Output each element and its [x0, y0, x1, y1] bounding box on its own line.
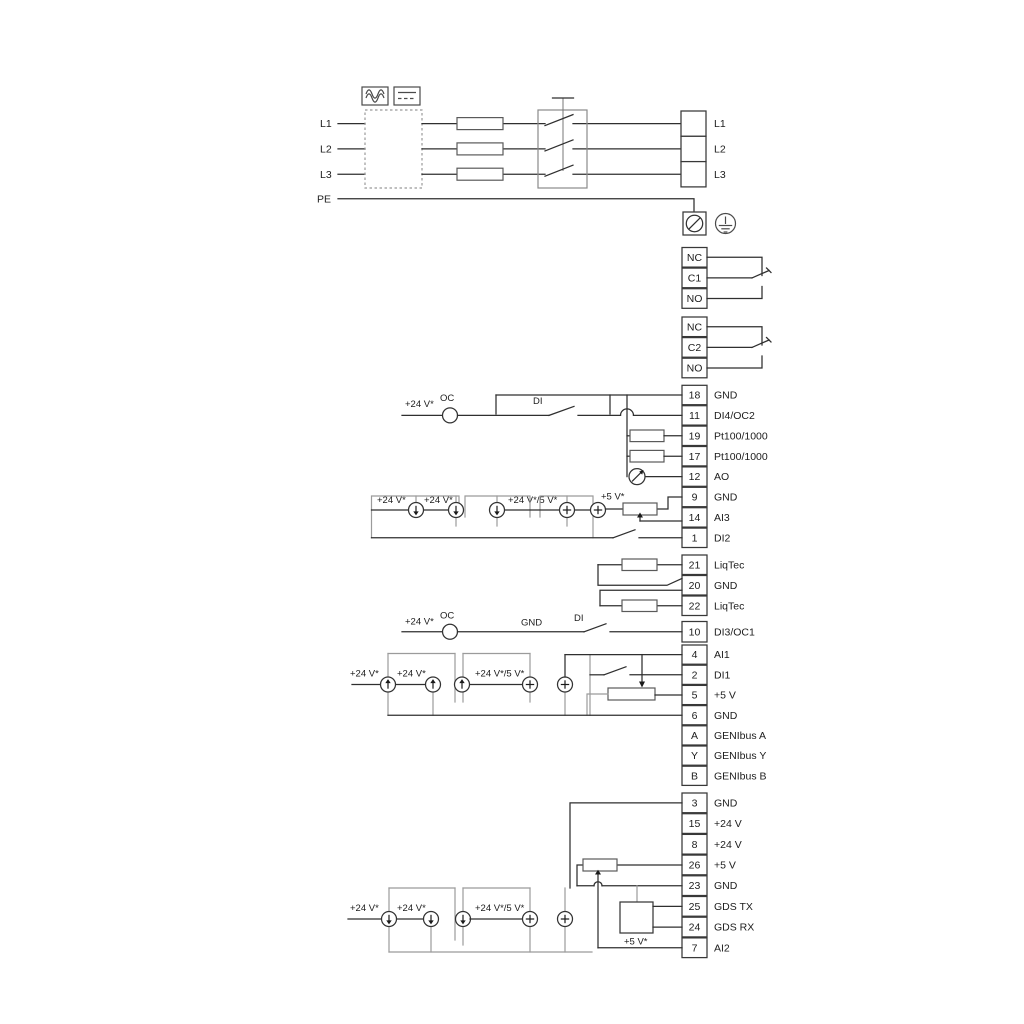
annotation-plus24v-5v: +24 V*/5 V* [508, 495, 558, 506]
di-switch-blade [549, 406, 574, 415]
terminal-4-label: AI1 [714, 649, 730, 661]
gds-sensor: +5 V* [620, 886, 682, 948]
terminal-14-number: 14 [689, 512, 701, 524]
terminal-23-label: GND [714, 880, 738, 892]
terminal-a-label: GENIbus A [714, 730, 766, 742]
terminal-17-number: 17 [689, 451, 701, 463]
terminal-strip-liqtec: 21 20 22 LiqTec GND LiqTec [598, 555, 744, 616]
terminal-23-number: 23 [689, 880, 701, 892]
current-source-up-icon [455, 677, 470, 692]
wiper-arrow [639, 682, 645, 688]
analog-output-meter-icon [629, 469, 682, 485]
annotation-plus24v: +24 V* [405, 399, 434, 410]
terminal-7-label: AI2 [714, 942, 730, 954]
annotation-plus24v: +24 V* [397, 669, 426, 680]
relay1-c1: C1 [688, 273, 702, 285]
terminal-strip-io2: 10 4 2 5 6 A Y B DI3/OC1 AI1 DI1 +5 V GN… [682, 622, 767, 786]
terminal-b-label: GENIbus B [714, 770, 767, 782]
screw-terminal-icon [683, 212, 706, 235]
annotation-plus24v-5v: +24 V*/5 V* [475, 669, 525, 680]
current-source-up-icon [381, 677, 396, 692]
fuse-l1 [457, 118, 503, 130]
terminal-10-label: DI3/OC1 [714, 626, 755, 638]
terminal-18-number: 18 [689, 390, 701, 402]
liqtec-sensor-resistor [622, 559, 657, 571]
terminal-y-label: GENIbus Y [714, 750, 766, 762]
terminal-21-number: 21 [689, 559, 701, 571]
current-source-down-icon [424, 912, 439, 927]
terminal-4-number: 4 [692, 649, 698, 661]
voltage-source-plus-icon [523, 912, 538, 927]
potentiometer [583, 859, 617, 871]
annotation-plus24v: +24 V* [377, 495, 406, 506]
terminal-18-label: GND [714, 390, 738, 402]
current-source-up-icon [426, 677, 441, 692]
annotation-plus5v: +5 V* [624, 937, 648, 948]
annotation-plus24v: +24 V* [350, 903, 379, 914]
terminal-24-number: 24 [689, 922, 701, 934]
switch-blade-l3 [545, 165, 573, 176]
terminal-12-label: AO [714, 471, 729, 483]
terminal-20-label: GND [714, 580, 738, 592]
annotation-plus24v: +24 V* [405, 617, 434, 628]
liqtec-sensor-resistor [622, 600, 657, 612]
terminal-2-number: 2 [692, 669, 698, 681]
relay2-c2: C2 [688, 342, 702, 354]
dc-symbol-icon [394, 87, 420, 105]
annotation-plus24v-5v: +24 V*/5 V* [475, 903, 525, 914]
terminal-25-number: 25 [689, 901, 701, 913]
annotation-oc: OC [440, 611, 454, 622]
oc-circle [443, 408, 458, 423]
di1-switch-blade [604, 667, 626, 675]
annotation-plus24v: +24 V* [350, 669, 379, 680]
output-label-l2: L2 [714, 144, 726, 156]
current-source-down-icon [382, 912, 397, 927]
input-label-l3: L3 [320, 169, 332, 181]
terminal-15-label: +24 V [714, 818, 742, 830]
input-label-l2: L2 [320, 144, 332, 156]
terminal-6-number: 6 [692, 710, 698, 722]
terminal-15-number: 15 [689, 818, 701, 830]
potentiometer [608, 688, 655, 700]
terminal-y-number: Y [691, 750, 698, 762]
power-section: L1 L2 L3 PE [317, 87, 736, 235]
relay1-contact [707, 257, 771, 298]
wiring-diagram: L1 L2 L3 PE [0, 0, 1024, 1024]
annotation-di: DI [574, 613, 584, 624]
relay2-contact [707, 327, 771, 368]
fuse-l3 [457, 168, 503, 180]
voltage-source-plus-icon [523, 677, 538, 692]
input-label-l1: L1 [320, 118, 332, 130]
terminal-1-number: 1 [692, 532, 698, 544]
terminal-2-label: DI1 [714, 669, 731, 681]
io2-wiring: +24 V* OC GND DI +24 V* +24 V* +24 V*/5 … [350, 611, 682, 716]
oc-circle [443, 624, 458, 639]
terminal-21-label: LiqTec [714, 559, 744, 571]
annotation-plus24v: +24 V* [397, 903, 426, 914]
relay2: NC C2 NO [682, 317, 771, 378]
current-source-down-icon [490, 503, 505, 518]
current-source-down-icon [456, 912, 471, 927]
terminal-strip-io1: 18 11 19 17 12 9 14 1 GND DI4/OC2 Pt100/… [682, 385, 768, 547]
relay2-nc: NC [687, 321, 703, 333]
voltage-source-plus-icon [558, 677, 573, 692]
terminal-20-number: 20 [689, 580, 701, 592]
terminal-19-number: 19 [689, 430, 701, 442]
terminal-11-label: DI4/OC2 [714, 410, 755, 422]
terminal-1-label: DI2 [714, 532, 731, 544]
terminal-7-number: 7 [692, 942, 698, 954]
terminal-22-number: 22 [689, 600, 701, 612]
voltage-source-plus-icon [591, 503, 606, 518]
terminal-22-label: LiqTec [714, 600, 744, 612]
di-switch-blade [584, 624, 606, 632]
terminal-9-number: 9 [692, 492, 698, 504]
switch-blade-l1 [545, 115, 573, 126]
ai1-sensor-options: +24 V* +24 V* +24 V*/5 V* [350, 654, 682, 716]
wire-pe [338, 199, 694, 212]
relay1: NC C1 NO [682, 248, 771, 309]
io3-wiring: +24 V* +24 V* +24 V*/5 V* [348, 803, 682, 952]
terminal-14-label: AI3 [714, 512, 730, 524]
relay2-no: NO [687, 363, 703, 375]
earth-icon [716, 214, 736, 234]
di2-switch-blade [613, 530, 635, 538]
terminal-10-number: 10 [689, 626, 701, 638]
terminal-26-label: +5 V [714, 860, 736, 872]
current-source-down-icon [449, 503, 464, 518]
ai3-sensor-options: +24 V* +24 V* +24 V*/5 V* +5 V* [372, 492, 683, 538]
terminal-3-number: 3 [692, 797, 698, 809]
annotation-oc: OC [440, 393, 454, 404]
terminal-24-label: GDS RX [714, 922, 754, 934]
terminal-8-label: +24 V [714, 839, 742, 851]
terminal-19-label: Pt100/1000 [714, 430, 768, 442]
switch-blade-l2 [545, 140, 573, 151]
power-output-terminals: L1 L2 L3 [681, 111, 726, 187]
relay1-no: NO [687, 293, 703, 305]
terminal-11-number: 11 [689, 410, 700, 422]
annotation-gnd: GND [521, 618, 542, 629]
io1-wiring: +24 V* OC DI +24 V* +24 V* [372, 393, 683, 538]
terminal-26-number: 26 [689, 860, 701, 872]
annotation-plus24v: +24 V* [424, 495, 453, 506]
terminal-17-label: Pt100/1000 [714, 451, 768, 463]
terminal-12-number: 12 [689, 471, 701, 483]
voltage-source-plus-icon [558, 912, 573, 927]
ai2-sensor-options: +24 V* +24 V* +24 V*/5 V* [348, 888, 592, 952]
terminal-5-number: 5 [692, 690, 698, 702]
terminal-8-number: 8 [692, 839, 698, 851]
annotation-di: DI [533, 396, 543, 407]
input-label-pe: PE [317, 194, 331, 206]
filter-box [365, 110, 422, 188]
ac-symbol-icon [362, 87, 388, 105]
resistor-pt100-2 [630, 450, 664, 462]
terminal-9-label: GND [714, 492, 738, 504]
terminal-25-label: GDS TX [714, 901, 753, 913]
voltage-source-plus-icon [560, 503, 575, 518]
annotation-plus5v: +5 V* [601, 492, 625, 503]
current-source-down-icon [409, 503, 424, 518]
terminal-b-number: B [691, 770, 698, 782]
terminal-a-number: A [691, 730, 698, 742]
output-label-l3: L3 [714, 169, 726, 181]
fuse-l2 [457, 143, 503, 155]
relay1-nc: NC [687, 252, 703, 264]
terminal-6-label: GND [714, 710, 738, 722]
output-label-l1: L1 [714, 118, 726, 130]
gds-sensor-box [620, 902, 653, 933]
resistor-pt100-1 [630, 430, 664, 442]
terminal-5-label: +5 V [714, 690, 736, 702]
liqtec-sensor-wiring [598, 559, 682, 612]
terminal-3-label: GND [714, 797, 738, 809]
terminal-strip-io3: 3 15 8 26 23 25 24 7 GND +24 V +24 V +5 … [682, 793, 754, 958]
